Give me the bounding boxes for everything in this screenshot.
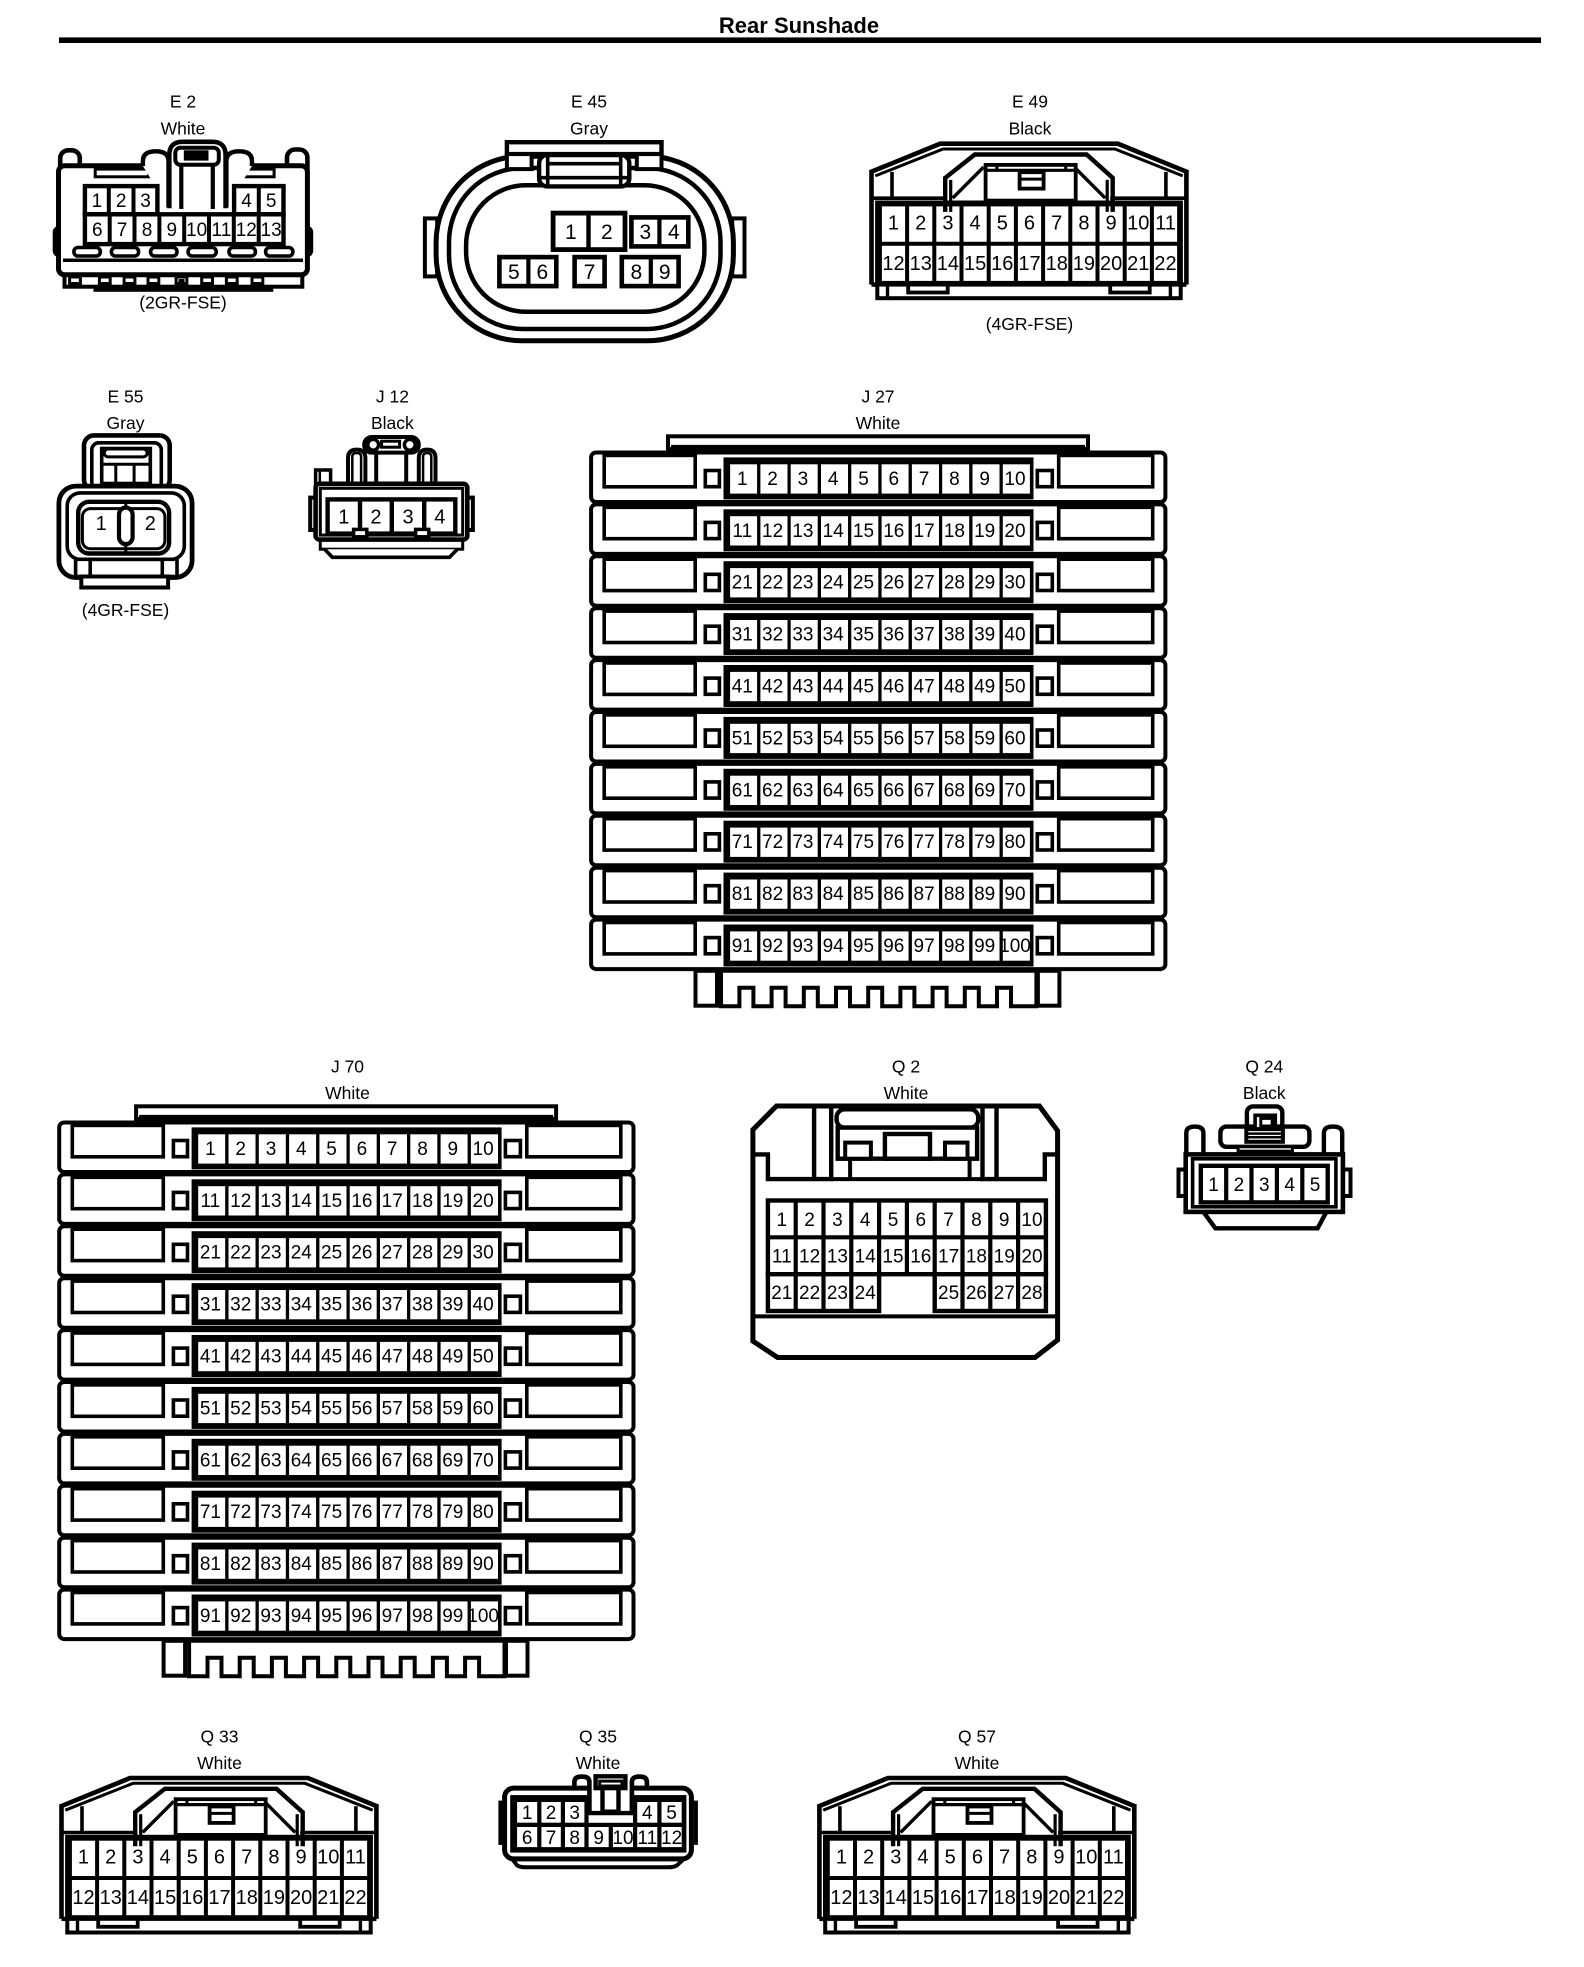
svg-text:20: 20 [1021, 1247, 1042, 1268]
svg-text:Black: Black [1243, 1083, 1286, 1103]
svg-text:J 12: J 12 [376, 387, 409, 407]
svg-text:11: 11 [637, 1828, 657, 1849]
svg-text:12: 12 [661, 1828, 682, 1849]
svg-text:4: 4 [668, 221, 680, 244]
svg-text:26: 26 [966, 1283, 987, 1304]
svg-text:5: 5 [666, 1803, 677, 1824]
svg-text:4: 4 [434, 507, 445, 529]
svg-text:White: White [576, 1753, 621, 1773]
svg-text:2: 2 [546, 1803, 557, 1824]
svg-text:17: 17 [938, 1247, 959, 1268]
svg-text:7: 7 [117, 220, 128, 241]
svg-text:12: 12 [236, 220, 257, 241]
svg-text:3: 3 [1259, 1175, 1270, 1196]
svg-text:Black: Black [1009, 119, 1052, 139]
svg-text:6: 6 [537, 261, 549, 284]
svg-text:2: 2 [370, 507, 381, 529]
svg-text:10: 10 [612, 1828, 633, 1849]
svg-text:3: 3 [569, 1803, 580, 1824]
svg-text:1: 1 [777, 1210, 788, 1231]
svg-text:11: 11 [772, 1247, 792, 1268]
svg-text:15: 15 [882, 1247, 903, 1268]
svg-text:Black: Black [371, 413, 414, 433]
svg-text:E 2: E 2 [170, 91, 196, 111]
svg-text:1: 1 [565, 221, 577, 244]
svg-text:White: White [955, 1753, 1000, 1773]
svg-text:E 49: E 49 [1012, 91, 1048, 111]
svg-text:8: 8 [971, 1210, 982, 1231]
svg-text:3: 3 [402, 507, 413, 529]
svg-text:3: 3 [832, 1210, 843, 1231]
svg-text:7: 7 [584, 261, 596, 284]
svg-text:5: 5 [266, 191, 277, 212]
svg-text:Q 35: Q 35 [579, 1726, 617, 1746]
svg-text:White: White [325, 1083, 370, 1103]
svg-text:12: 12 [799, 1247, 820, 1268]
svg-text:7: 7 [943, 1210, 954, 1231]
svg-text:Rear Sunshade: Rear Sunshade [719, 13, 879, 38]
svg-text:J 70: J 70 [331, 1056, 364, 1076]
svg-text:4: 4 [642, 1803, 653, 1824]
svg-text:10: 10 [186, 220, 207, 241]
svg-text:8: 8 [142, 220, 153, 241]
svg-text:13: 13 [261, 220, 282, 241]
svg-text:E 45: E 45 [571, 91, 607, 111]
svg-text:4: 4 [860, 1210, 871, 1231]
svg-text:6: 6 [522, 1828, 533, 1849]
svg-text:18: 18 [966, 1247, 987, 1268]
svg-text:1: 1 [338, 507, 349, 529]
svg-text:2: 2 [804, 1210, 815, 1231]
svg-text:3: 3 [640, 221, 652, 244]
svg-text:6: 6 [92, 220, 103, 241]
svg-text:23: 23 [827, 1283, 848, 1304]
svg-text:4: 4 [1284, 1175, 1295, 1196]
svg-text:2: 2 [116, 191, 127, 212]
svg-text:13: 13 [827, 1247, 848, 1268]
svg-text:6: 6 [916, 1210, 927, 1231]
svg-text:White: White [884, 1083, 929, 1103]
svg-text:28: 28 [1021, 1283, 1042, 1304]
svg-text:9: 9 [659, 261, 671, 284]
svg-text:22: 22 [799, 1283, 820, 1304]
svg-text:8: 8 [569, 1828, 580, 1849]
svg-text:Gray: Gray [107, 413, 145, 433]
svg-text:1: 1 [1208, 1175, 1219, 1196]
svg-text:2: 2 [1234, 1175, 1245, 1196]
svg-text:16: 16 [910, 1247, 931, 1268]
svg-text:1: 1 [92, 191, 103, 212]
svg-text:(4GR-FSE): (4GR-FSE) [82, 600, 170, 620]
svg-text:27: 27 [994, 1283, 1015, 1304]
svg-text:(4GR-FSE): (4GR-FSE) [986, 314, 1074, 334]
svg-text:7: 7 [546, 1828, 557, 1849]
svg-text:21: 21 [771, 1283, 792, 1304]
svg-text:10: 10 [1021, 1210, 1042, 1231]
svg-text:Q 24: Q 24 [1245, 1056, 1283, 1076]
svg-text:White: White [197, 1753, 242, 1773]
svg-text:Q 33: Q 33 [201, 1726, 239, 1746]
svg-text:White: White [856, 413, 901, 433]
svg-text:Gray: Gray [570, 119, 608, 139]
svg-text:14: 14 [855, 1247, 877, 1268]
svg-text:Q 57: Q 57 [958, 1726, 996, 1746]
svg-text:9: 9 [999, 1210, 1010, 1231]
svg-text:25: 25 [938, 1283, 959, 1304]
svg-text:2: 2 [601, 221, 613, 244]
svg-text:5: 5 [508, 261, 520, 284]
svg-text:5: 5 [888, 1210, 899, 1231]
svg-text:4: 4 [241, 191, 252, 212]
svg-text:24: 24 [855, 1283, 877, 1304]
svg-text:9: 9 [167, 220, 178, 241]
svg-text:8: 8 [630, 261, 642, 284]
svg-text:(2GR-FSE): (2GR-FSE) [139, 293, 227, 313]
svg-text:Q 2: Q 2 [892, 1056, 920, 1076]
svg-text:1: 1 [522, 1803, 533, 1824]
svg-text:19: 19 [994, 1247, 1015, 1268]
svg-text:5: 5 [1310, 1175, 1321, 1196]
svg-text:E 55: E 55 [108, 387, 144, 407]
svg-text:White: White [161, 119, 206, 139]
svg-text:3: 3 [140, 191, 151, 212]
svg-text:2: 2 [145, 513, 156, 535]
svg-text:J 27: J 27 [861, 387, 894, 407]
svg-text:9: 9 [593, 1828, 604, 1849]
svg-text:11: 11 [212, 220, 232, 241]
svg-text:1: 1 [96, 513, 107, 535]
